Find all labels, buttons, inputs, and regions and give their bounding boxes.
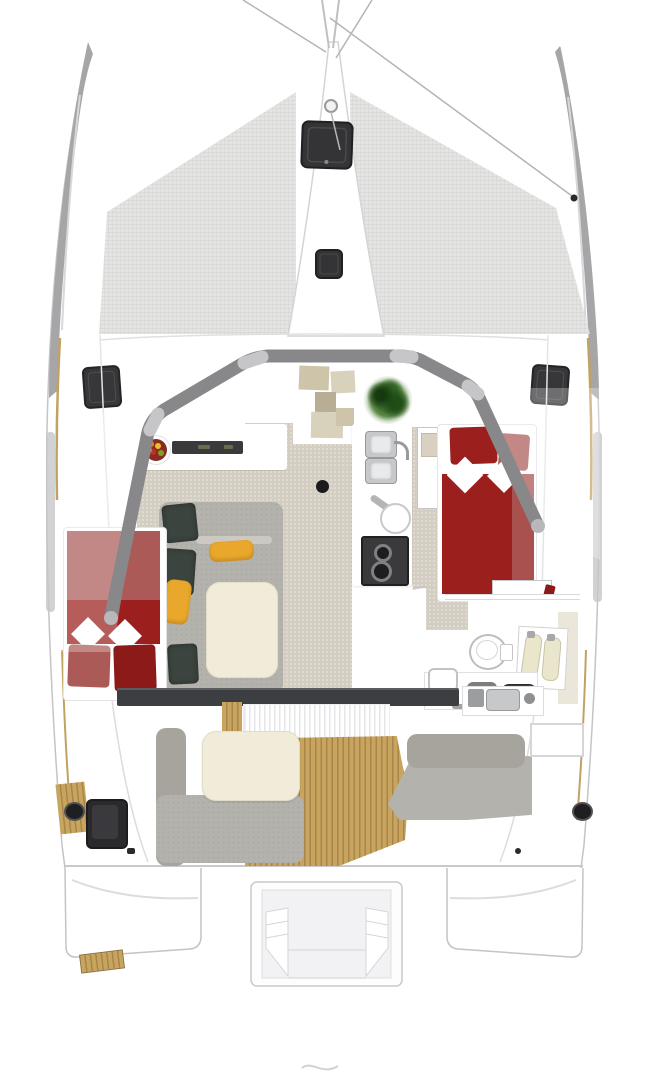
roof-arch-foot-starboard <box>531 519 545 533</box>
roof-structure-layer <box>0 0 648 1080</box>
roof-arch-foot-port <box>104 611 118 625</box>
catamaran-floor-plan <box>0 0 648 1080</box>
